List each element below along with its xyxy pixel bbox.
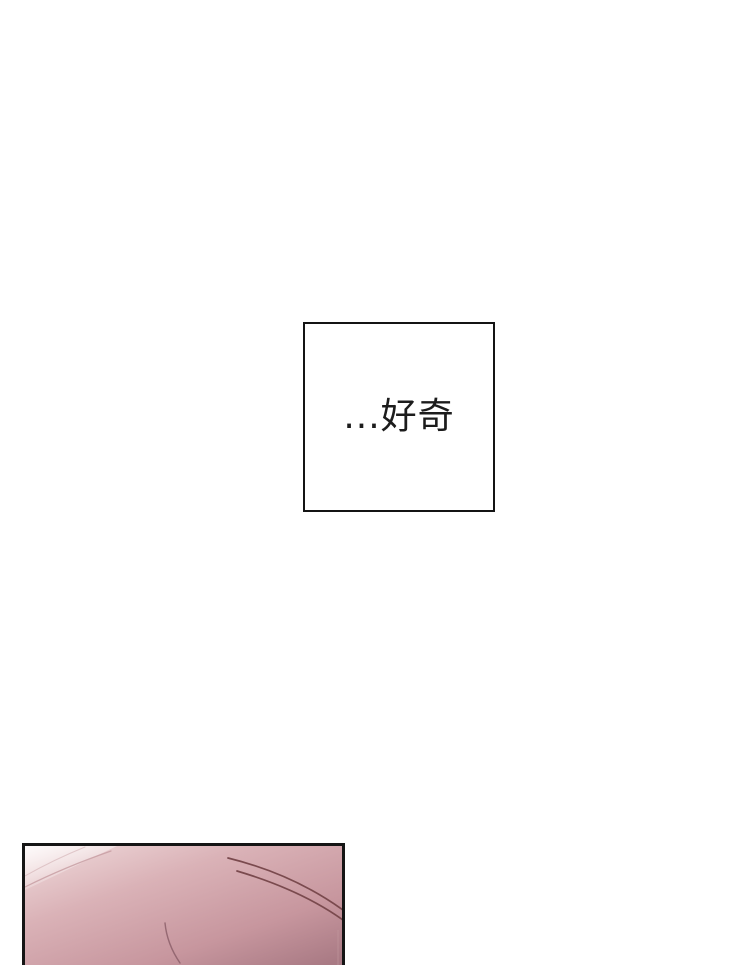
caption-text: ...好奇 [343, 397, 454, 437]
artwork-panel [22, 843, 345, 965]
comic-page: ...好奇 [0, 0, 740, 965]
caption-box: ...好奇 [303, 322, 495, 512]
artwork-illustration [25, 846, 342, 965]
